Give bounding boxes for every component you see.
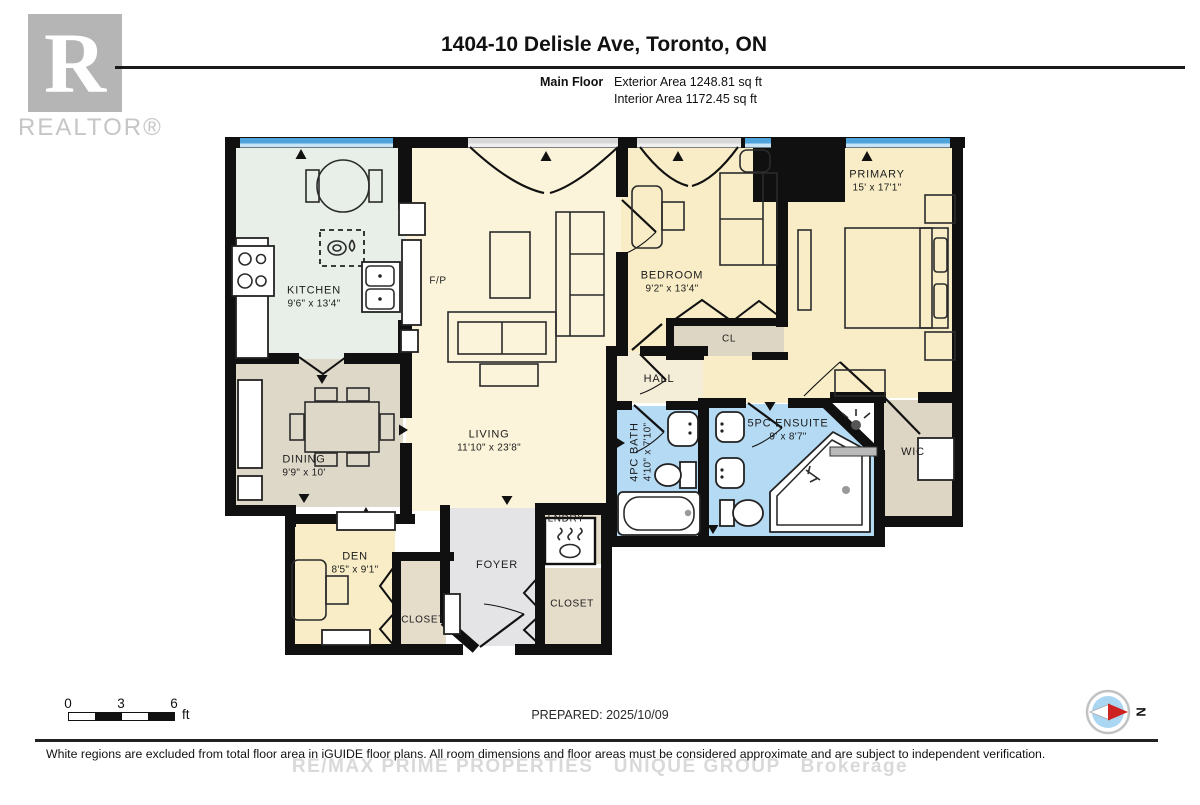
foyer-furniture [444, 594, 460, 634]
room-label-living: LIVING 11'10" x 23'8" [457, 427, 521, 454]
room-name: F/P [429, 275, 446, 288]
room-dims: 4'10" x 7'10" [642, 422, 655, 481]
room-name: DINING [282, 452, 325, 466]
room-name: HALL [644, 372, 675, 386]
sink-icon [716, 458, 744, 488]
room-label-primary: PRIMARY 15' x 17'1" [849, 167, 905, 194]
scale-tick: 3 [117, 696, 125, 711]
scale-bar [68, 712, 175, 721]
room-dims: 9' x 8'7" [748, 431, 829, 444]
room-name: WIC [901, 445, 925, 459]
room-name: FOYER [476, 558, 518, 572]
toilet-icon [655, 462, 696, 488]
room-label-bath: 4PC BATH 4'10" x 7'10" [627, 422, 654, 481]
room-name: DEN [331, 549, 378, 563]
room-name: 4PC BATH [627, 422, 641, 481]
floor-plan-page: { "header": { "title": "1404-10 Delisle … [0, 0, 1200, 805]
room-label-kitchen: KITCHEN 9'6" x 13'4" [287, 283, 341, 310]
room-dims: 11'10" x 23'8" [457, 442, 521, 455]
scale-bar-ticks: 0 3 6 [0, 696, 300, 712]
room-dims: 9'2" x 13'4" [641, 283, 703, 296]
toilet-icon [720, 500, 763, 526]
stove-icon [232, 246, 274, 296]
room-label-fireplace: F/P [429, 275, 446, 288]
sink-icon [716, 412, 744, 442]
prepared-date: PREPARED: 2025/10/09 [531, 708, 668, 722]
scale-tick: 6 [170, 696, 178, 711]
scale-unit: ft [182, 707, 190, 722]
room-label-den: DEN 8'5" x 9'1" [331, 549, 378, 576]
room-label-dining: DINING 9'9" x 10' [282, 452, 325, 479]
room-label-cl: CL [722, 333, 736, 346]
room-name: CL [722, 333, 736, 346]
room-name: LIVING [457, 427, 521, 441]
room-label-closet-foyer: CLOSET [550, 598, 594, 611]
room-name: 5PC ENSUITE [748, 416, 829, 430]
sink-icon [668, 412, 698, 446]
room-name: PRIMARY [849, 167, 905, 181]
footer-divider [35, 739, 1158, 742]
room-label-wic: WIC [901, 445, 925, 459]
floor-plan-drawing [0, 0, 1200, 805]
room-name: BEDROOM [641, 268, 703, 282]
compass-icon: N [1082, 686, 1152, 738]
room-name: KITCHEN [287, 283, 341, 297]
room-label-laundry: LNDRY [548, 513, 585, 526]
sink-icon [362, 262, 400, 312]
brokerage-watermark: RE/MAX PRIME PROPERTIES UNIQUE GROUP Bro… [292, 756, 908, 778]
bathtub-icon [618, 492, 700, 535]
room-dims: 9'6" x 13'4" [287, 298, 341, 311]
room-dims: 15' x 17'1" [849, 182, 905, 195]
room-name: CLOSET [550, 598, 594, 611]
room-label-hall: HALL [644, 372, 675, 386]
room-dims: 8'5" x 9'1" [331, 564, 378, 577]
room-name: LNDRY [548, 513, 585, 526]
room-label-bedroom: BEDROOM 9'2" x 13'4" [641, 268, 703, 295]
compass-north-label: N [1134, 707, 1149, 716]
room-label-closet-den: CLOSET [401, 614, 445, 627]
room-label-ensuite: 5PC ENSUITE 9' x 8'7" [748, 416, 829, 443]
scale-tick: 0 [64, 696, 72, 711]
room-dims: 9'9" x 10' [282, 467, 325, 480]
room-label-foyer: FOYER [476, 558, 518, 572]
room-name: CLOSET [401, 614, 445, 627]
